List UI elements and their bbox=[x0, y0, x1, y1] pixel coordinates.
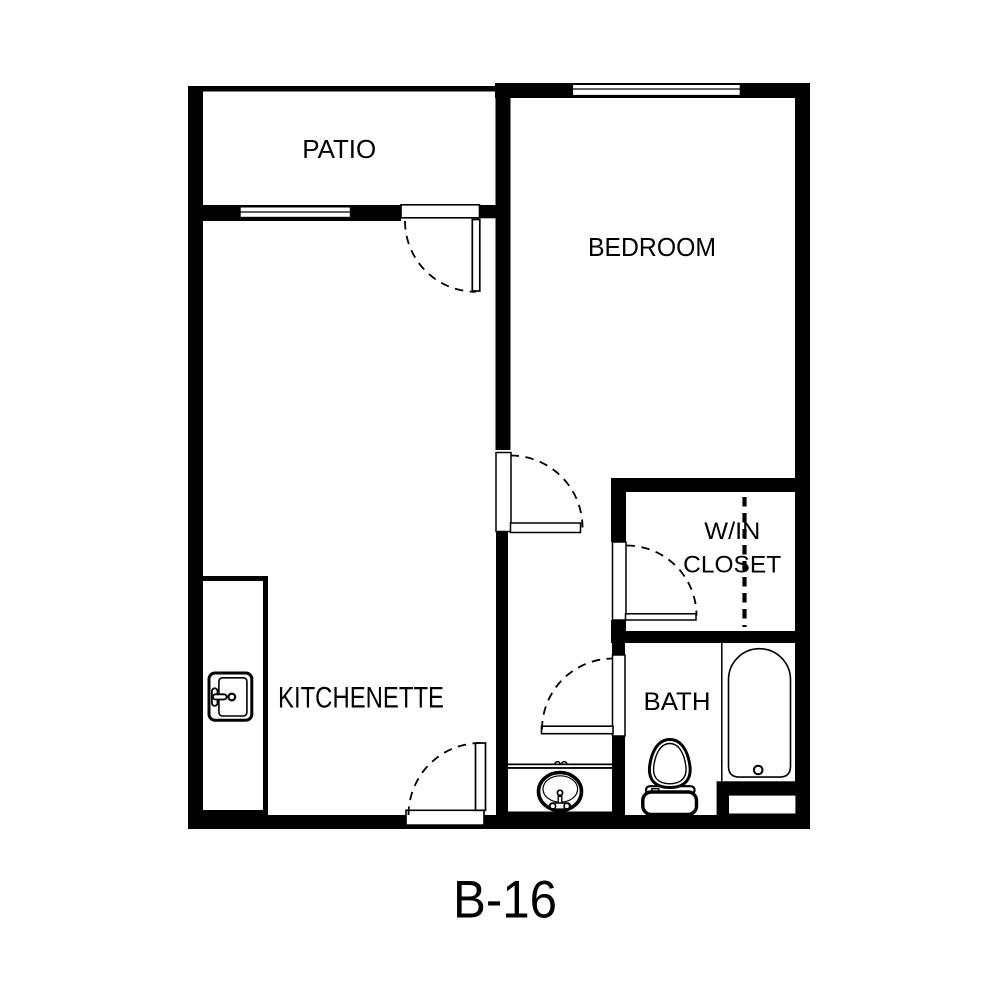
svg-text:BATH: BATH bbox=[644, 688, 711, 716]
svg-text:CLOSET: CLOSET bbox=[683, 552, 781, 579]
svg-text:BEDROOM: BEDROOM bbox=[588, 232, 716, 262]
svg-text:B-16: B-16 bbox=[453, 871, 557, 930]
svg-text:W/IN: W/IN bbox=[704, 518, 760, 545]
svg-text:KITCHENETTE: KITCHENETTE bbox=[278, 682, 444, 715]
svg-text:PATIO: PATIO bbox=[302, 134, 376, 164]
